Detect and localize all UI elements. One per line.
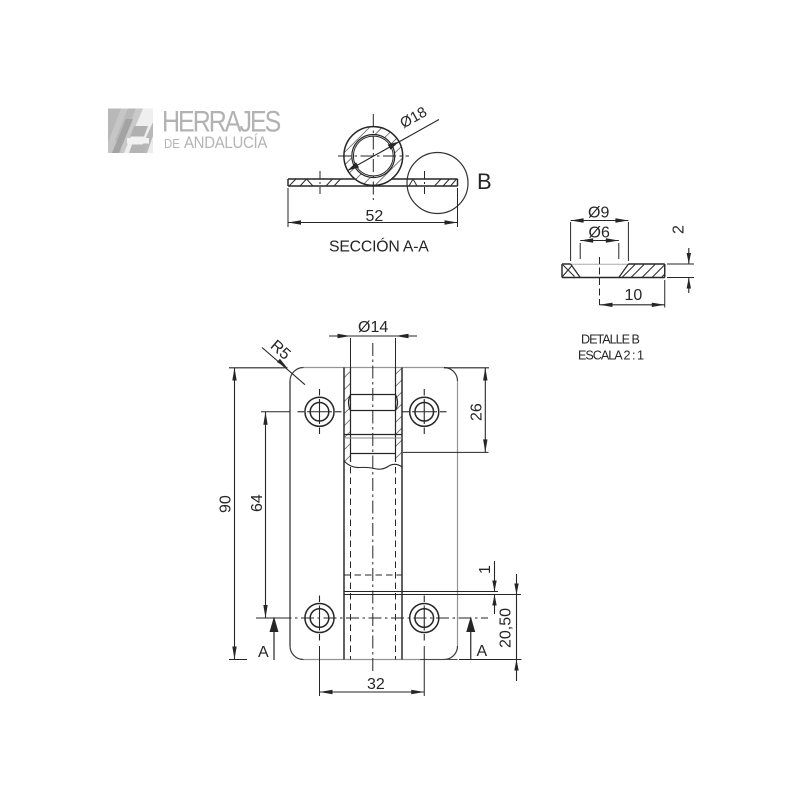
svg-text:2: 2 [671, 225, 688, 234]
svg-text:HERRAJES: HERRAJES [162, 105, 280, 138]
svg-text:64: 64 [249, 494, 266, 512]
svg-text:Ø14: Ø14 [358, 319, 388, 336]
svg-text:10: 10 [625, 287, 643, 304]
svg-text:52: 52 [366, 208, 384, 225]
svg-text:26: 26 [469, 403, 486, 421]
svg-text:Ø6: Ø6 [589, 225, 610, 242]
svg-text:SECCIÓN A-A: SECCIÓN A-A [329, 237, 429, 256]
svg-text:Ø9: Ø9 [588, 205, 609, 222]
svg-text:32: 32 [367, 676, 385, 693]
svg-text:1: 1 [477, 565, 494, 574]
svg-text:A: A [477, 643, 488, 660]
svg-text:20,50: 20,50 [498, 608, 515, 648]
svg-text:90: 90 [218, 495, 235, 513]
svg-text:B: B [477, 169, 492, 194]
svg-text:ESCALA 2 : 1: ESCALA 2 : 1 [578, 349, 644, 363]
svg-text:DE: DE [164, 136, 180, 151]
svg-text:A: A [258, 644, 269, 661]
svg-text:DETALLE B: DETALLE B [581, 333, 640, 347]
svg-text:ANDALUCÍA: ANDALUCÍA [184, 132, 268, 152]
svg-text:R5: R5 [267, 337, 294, 363]
